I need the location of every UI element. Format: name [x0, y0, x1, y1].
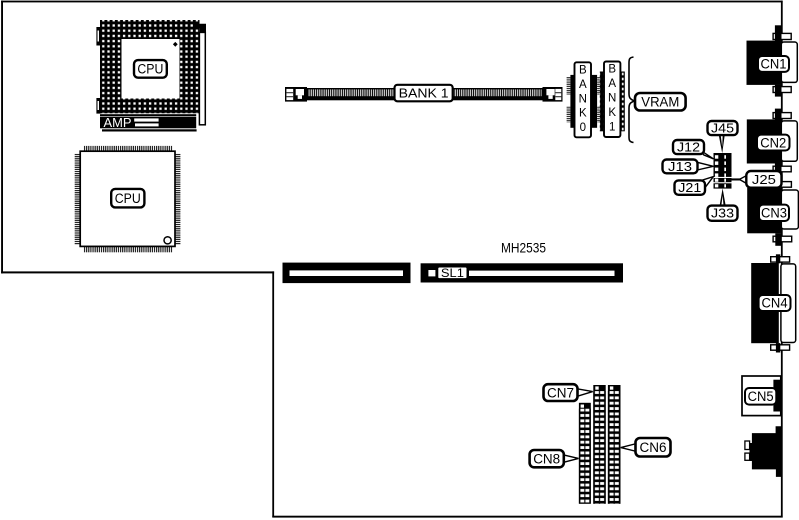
svg-text:J45: J45 [711, 121, 734, 135]
svg-text:J33: J33 [711, 207, 734, 221]
svg-text:J21: J21 [678, 181, 701, 195]
svg-text:AMP: AMP [104, 115, 132, 130]
svg-text:J25: J25 [752, 172, 776, 187]
svg-text:CN8: CN8 [533, 451, 560, 466]
svg-text:J13: J13 [668, 160, 692, 174]
svg-text:K: K [579, 108, 587, 120]
svg-text:BANK 1: BANK 1 [399, 86, 449, 101]
svg-text:N: N [608, 93, 616, 105]
svg-text:CN6: CN6 [640, 440, 667, 455]
svg-text:CN7: CN7 [547, 385, 574, 400]
svg-text:CN5: CN5 [748, 389, 774, 404]
svg-text:B: B [579, 65, 587, 77]
svg-text:VRAM: VRAM [641, 94, 679, 109]
svg-text:A: A [579, 79, 587, 91]
svg-text:CN2: CN2 [760, 135, 786, 150]
svg-text:J12: J12 [677, 140, 700, 154]
svg-text:N: N [579, 94, 587, 106]
svg-text:SL1: SL1 [441, 266, 464, 280]
svg-text:CN4: CN4 [762, 296, 788, 311]
svg-text:A: A [608, 78, 616, 90]
svg-text:1: 1 [609, 122, 615, 134]
svg-text:CN1: CN1 [761, 57, 787, 72]
svg-text:B: B [608, 64, 616, 76]
svg-text:CN3: CN3 [761, 206, 787, 221]
svg-text:K: K [608, 107, 616, 119]
svg-text:0: 0 [580, 122, 586, 134]
svg-text:CPU: CPU [137, 62, 163, 77]
svg-text:CPU: CPU [115, 191, 141, 206]
svg-text:MH2535: MH2535 [501, 241, 546, 256]
